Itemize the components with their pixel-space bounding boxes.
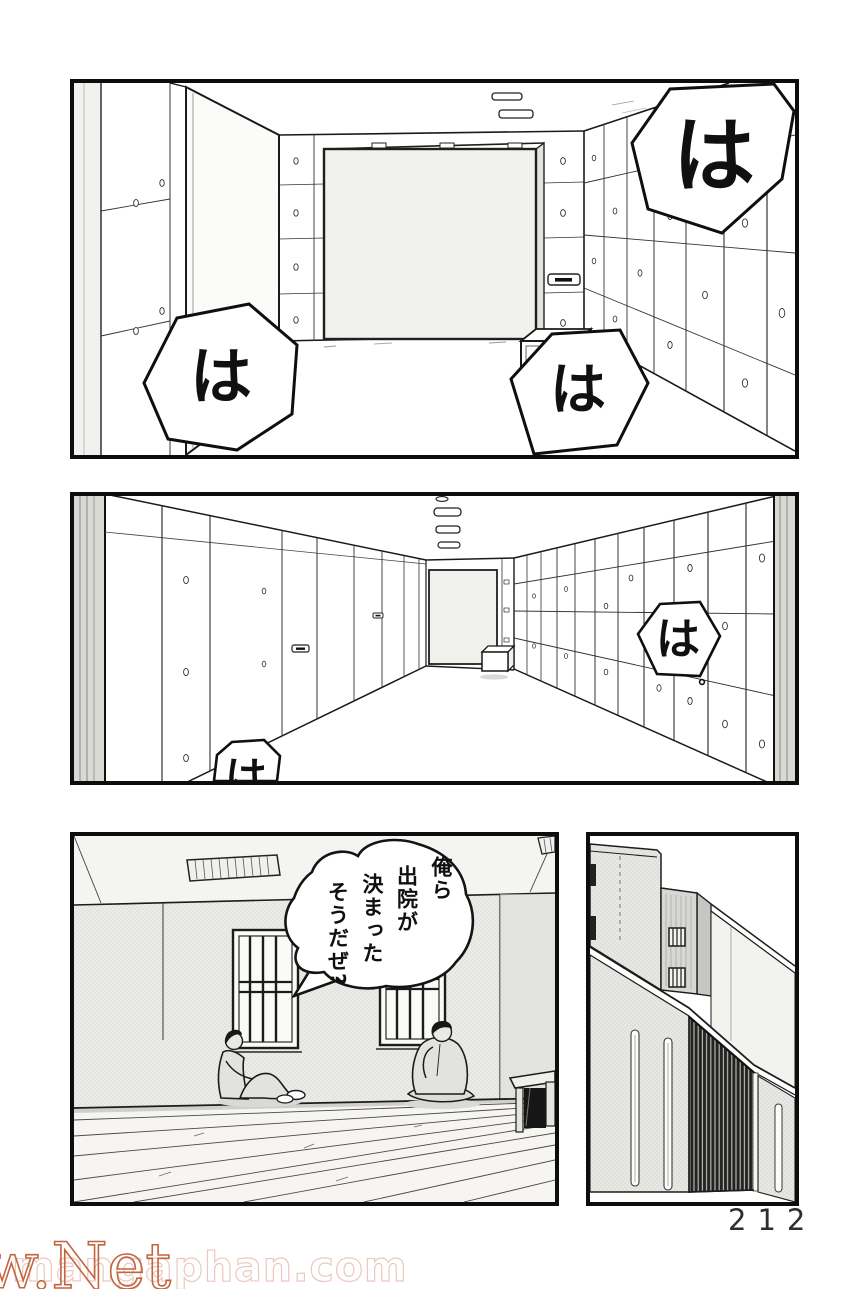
dialogue-line: 俺ら (425, 852, 457, 994)
sfx-ha: は (550, 363, 606, 419)
building-tower (661, 888, 711, 996)
wall-slot (548, 274, 580, 285)
perimeter-wall-right (758, 1076, 795, 1202)
wooden-bench (510, 1071, 555, 1132)
tower-window (669, 928, 685, 946)
sfx-ha: は (656, 618, 700, 662)
watermark-site-name: w.Net (0, 1230, 171, 1289)
door-slot (373, 613, 383, 618)
ceiling-vents (434, 497, 461, 548)
sfx-ha: は (190, 346, 252, 408)
tv-box (480, 646, 514, 680)
sfx-ha: は (673, 116, 755, 198)
panel-4-art (590, 836, 795, 1202)
dialogue-line: 出院が (390, 852, 422, 994)
tower-window (669, 968, 685, 987)
panel-1-hallway: は は は (70, 79, 799, 459)
panel-3-art (74, 836, 555, 1202)
door-slot (292, 645, 309, 652)
sfx-ha: は (225, 757, 267, 785)
panel-2-hallway: は は (70, 492, 799, 785)
manga-page: は は は (0, 0, 860, 1289)
panel-4-exterior (586, 832, 799, 1206)
large-door (324, 143, 544, 339)
dialogue-line: 決まった (356, 852, 388, 994)
page-number: 212 (728, 1203, 818, 1237)
dialogue-line: そうだぜ? (321, 852, 353, 994)
panel-3-cell-room: 俺ら 出院が 決まった そうだぜ? (70, 832, 559, 1206)
dialogue-text: 俺ら 出院が 決まった そうだぜ? (322, 852, 456, 994)
ceiling-vents (492, 93, 533, 118)
